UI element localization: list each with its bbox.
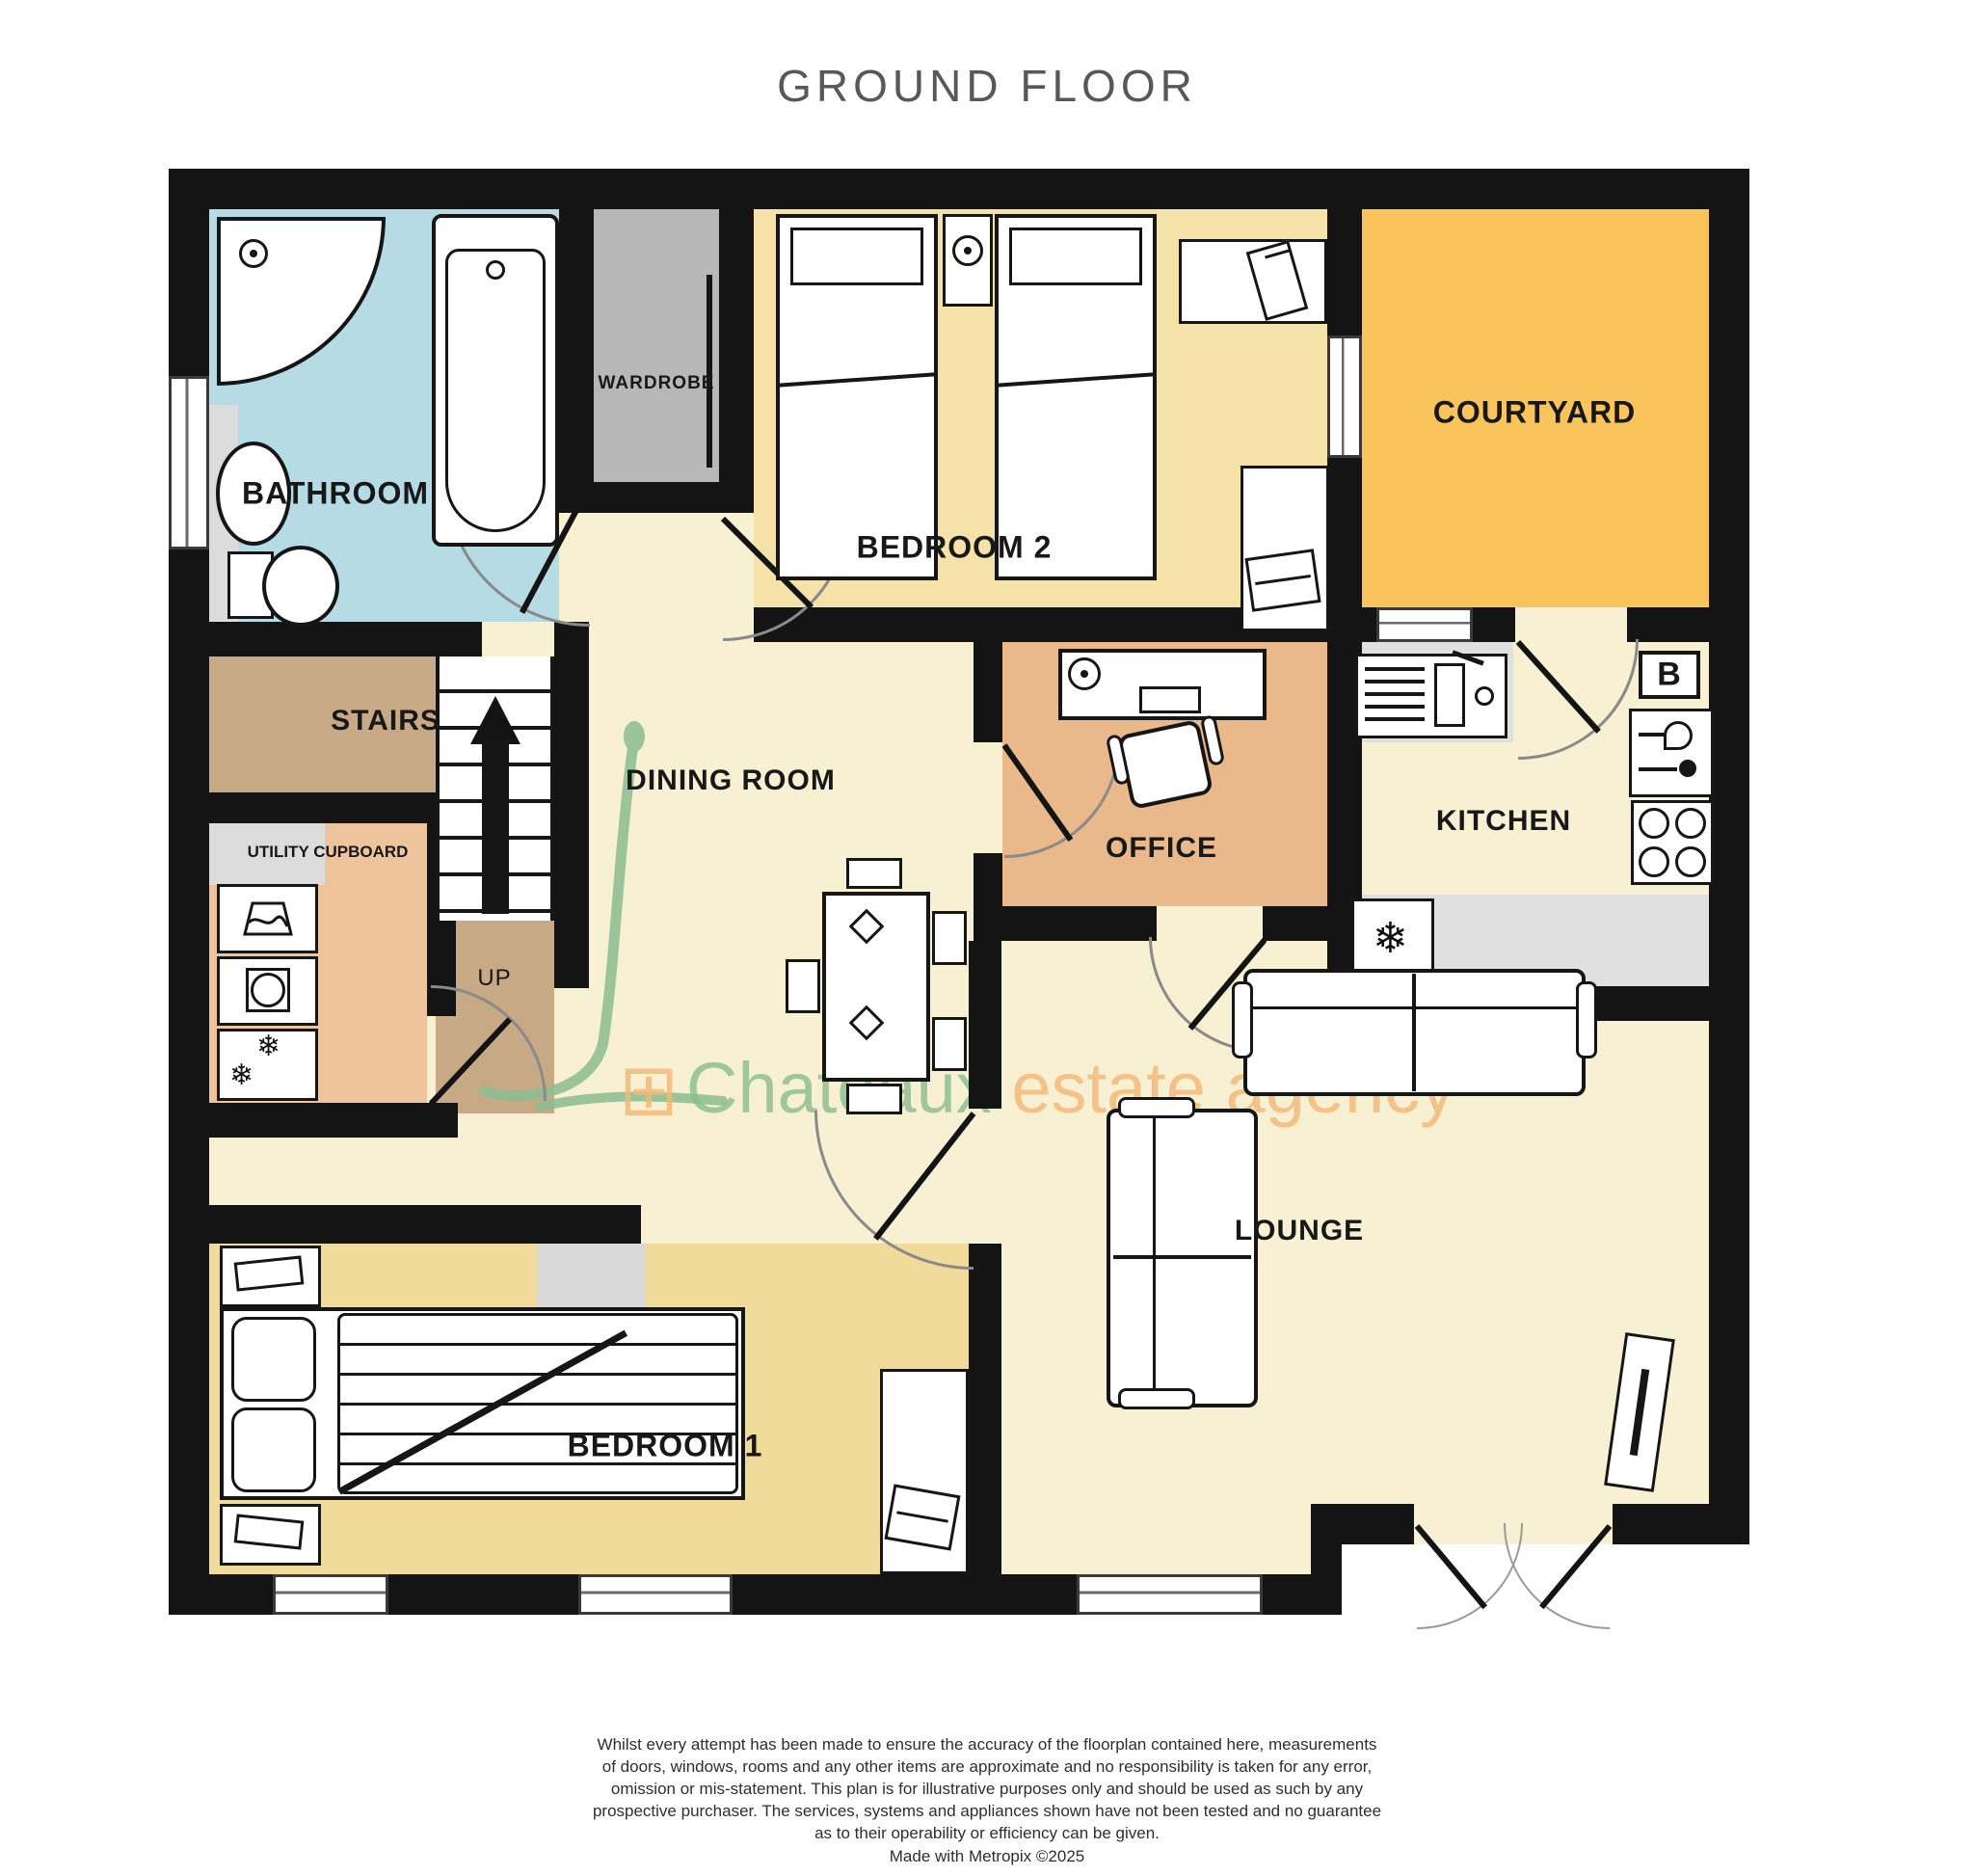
- room-wardrobe: [594, 209, 719, 482]
- sink-plug-icon: [1475, 686, 1494, 706]
- dining-chair-top: [846, 858, 902, 889]
- wardrobe-label: WARDROBE: [599, 373, 715, 394]
- wall-right: [1709, 169, 1749, 1544]
- hob-burner-4: [1675, 846, 1706, 877]
- toilet-bowl: [262, 546, 339, 627]
- hob-burner-2: [1675, 808, 1706, 839]
- fridge-snowflake-icon: ❄: [1373, 914, 1408, 963]
- up-label: UP: [477, 965, 511, 992]
- utility-label: UTILITY CUPBOARD: [248, 843, 409, 862]
- desk-keyboard: [1139, 686, 1201, 713]
- dining-chair-right-2: [932, 1017, 967, 1071]
- bathroom-window: [169, 376, 209, 549]
- bed-pillow-bottom: [231, 1407, 316, 1492]
- bathroom-label: BATHROOM: [242, 476, 429, 512]
- page-title: GROUND FLOOR: [0, 60, 1974, 112]
- sink-drainer-lines: [1365, 667, 1425, 725]
- wall-bathroom-bottom: [169, 622, 482, 657]
- boiler-badge-label: B: [1657, 657, 1682, 694]
- dining-chair-right-1: [932, 911, 967, 965]
- bedroom1-label: BEDROOM 1: [568, 1429, 763, 1464]
- dining-chair-bottom: [846, 1084, 902, 1114]
- boiler-glass-stem: [1639, 733, 1666, 737]
- sofa-vertical-backline: [1153, 1114, 1156, 1402]
- stairs-up-arrow-shaft: [482, 740, 509, 914]
- wall-stairs-right: [554, 622, 589, 988]
- kitchen-courtyard-window: [1376, 607, 1473, 642]
- bedroom1-window-bay: [578, 1574, 733, 1615]
- wardrobe-sliding-door-line: [707, 275, 712, 468]
- sofa-horizontal-backline: [1249, 1006, 1580, 1009]
- kitchen-label: KITCHEN: [1436, 805, 1571, 838]
- bathtub-inner: [445, 249, 546, 532]
- wall-lounge-left: [969, 941, 1001, 1109]
- wall-wardrobe-bedroom2: [719, 209, 754, 513]
- watermark-logo window-grid-icon: ⊞: [619, 1049, 679, 1132]
- wall-bedroom1-top: [169, 1205, 641, 1244]
- stairs-label: STAIRS: [331, 705, 440, 737]
- disclaimer-line-1: Whilst every attempt has been made to en…: [0, 1733, 1974, 1755]
- sink-basin: [1434, 663, 1465, 727]
- hob-burner-1: [1639, 808, 1669, 839]
- disclaimer-line-4: prospective purchaser. The services, sys…: [0, 1800, 1974, 1822]
- stairs-up-arrow-head: [470, 696, 520, 744]
- wall-office-bottom-a: [974, 906, 1157, 941]
- office-label: OFFICE: [1106, 832, 1217, 865]
- boiler-probe-dot: [1679, 760, 1696, 777]
- bedroom2-label: BEDROOM 2: [857, 530, 1053, 566]
- bed-pillow-top: [231, 1317, 316, 1402]
- dining-chair-left: [786, 959, 820, 1013]
- wall-courtyard-bottom-b: [1627, 607, 1709, 642]
- washing-machine-drum-icon: [251, 973, 285, 1007]
- tumble-dryer-icon: [239, 898, 297, 940]
- bedside-lamp-dot: [964, 247, 972, 255]
- wall-utility-bottom: [169, 1103, 458, 1138]
- sofa-vertical-divider: [1113, 1255, 1251, 1259]
- freezer-snowflake-icon-1: ❄: [256, 1030, 280, 1063]
- boiler-glass-icon: [1664, 721, 1693, 750]
- wall-bathroom-wardrobe: [559, 209, 594, 482]
- boiler-probe-stem: [1639, 767, 1677, 771]
- sofa-vertical-arm-bottom: [1118, 1388, 1195, 1409]
- floorplan-page: GROUND FLOOR ⊞ Chateaux estate agency: [0, 0, 1974, 1876]
- bedroom1-window-left: [273, 1574, 388, 1615]
- freezer-snowflake-icon-2: ❄: [229, 1059, 253, 1092]
- sofa-horizontal-divider: [1412, 974, 1416, 1091]
- disclaimer: Whilst every attempt has been made to en…: [0, 1733, 1974, 1867]
- sofa-horizontal-arm-right: [1576, 981, 1597, 1059]
- bed2-right-headboard: [1009, 228, 1142, 285]
- wall-stairs-utility: [169, 792, 436, 823]
- disclaimer-line-2: of doors, windows, rooms and any other i…: [0, 1755, 1974, 1778]
- wall-bottom-step: [1311, 1504, 1342, 1615]
- courtyard-label: COURTYARD: [1433, 395, 1637, 431]
- bath-tap-icon: [486, 260, 505, 280]
- disclaimer-line-3: omission or mis-statement. This plan is …: [0, 1778, 1974, 1800]
- dining-label: DINING ROOM: [626, 764, 836, 797]
- hob-burner-3: [1639, 846, 1669, 877]
- desk-lamp-dot: [1080, 670, 1088, 678]
- disclaimer-credit: Made with Metropix ©2025: [0, 1845, 1974, 1867]
- lounge-label: LOUNGE: [1235, 1215, 1364, 1247]
- bed-quilt: [337, 1313, 738, 1494]
- wall-bottom-right-a: [1340, 1504, 1414, 1544]
- sofa-horizontal-arm-left: [1232, 981, 1253, 1059]
- shower-drain-dot: [250, 250, 257, 257]
- sofa-vertical-arm-top: [1118, 1097, 1195, 1118]
- lounge-window: [1077, 1574, 1263, 1615]
- disclaimer-line-5: as to their operability or efficiency ca…: [0, 1822, 1974, 1844]
- wall-top: [169, 169, 1749, 209]
- wall-bedroom1-right: [969, 1244, 1001, 1615]
- wall-office-left-a: [974, 642, 1002, 742]
- wall-bottom-right-b: [1613, 1504, 1749, 1544]
- bed2-left-headboard: [790, 228, 923, 285]
- bedroom2-courtyard-window: [1327, 335, 1362, 458]
